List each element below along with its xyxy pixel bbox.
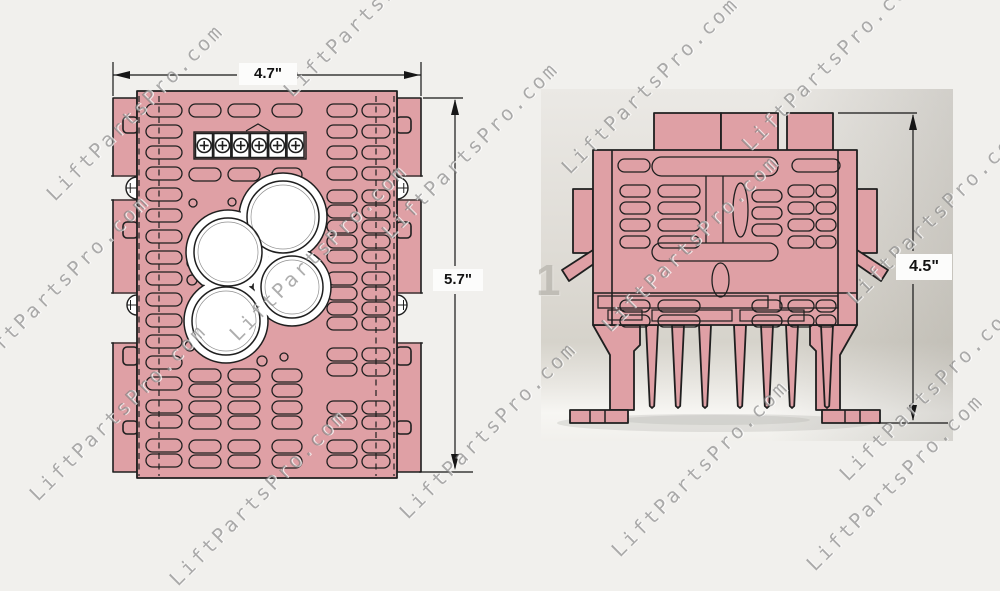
dimension-side-height-label: 4.5"	[896, 254, 952, 280]
photo-numeral: 1	[536, 256, 560, 306]
product-diagram: 1 LiftPartsPro.comLiftPartsPro.comLiftPa…	[0, 0, 1000, 500]
dimension-width-label: 4.7"	[239, 63, 297, 85]
technical-drawing	[0, 0, 1000, 500]
dimension-height-label: 5.7"	[433, 269, 483, 291]
